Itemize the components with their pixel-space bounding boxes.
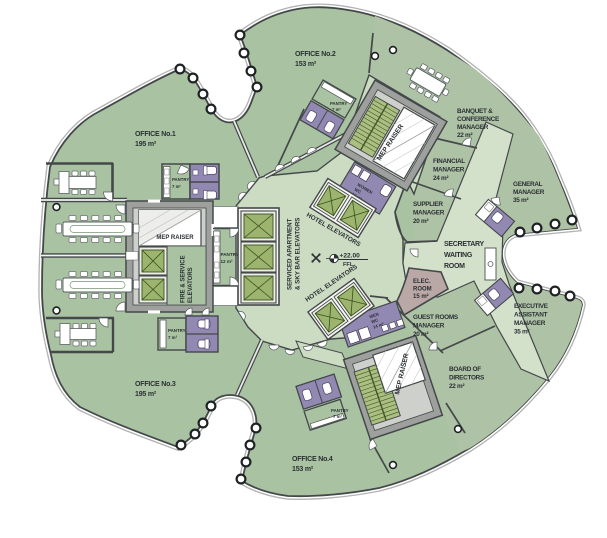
svg-text:7 m²: 7 m² [332,107,341,112]
svg-text:GENERAL: GENERAL [513,181,543,188]
svg-text:SECRETARY: SECRETARY [444,241,484,248]
svg-text:22 m²: 22 m² [449,383,464,390]
svg-text:MANAGER: MANAGER [413,210,445,217]
svg-text:WAITING: WAITING [444,252,473,259]
svg-text:BANQUET &: BANQUET & [457,108,493,115]
svg-text:CONFERENCE: CONFERENCE [457,116,500,123]
svg-text:ELEVATORS: ELEVATORS [188,267,194,303]
svg-text:OFFICE No.3: OFFICE No.3 [135,381,176,388]
svg-text:PANTRY: PANTRY [221,252,239,257]
svg-text:EXECUTIVE: EXECUTIVE [514,303,549,310]
svg-text:195 m²: 195 m² [135,141,157,148]
svg-text:PANTRY: PANTRY [330,101,347,106]
svg-text:OFFICE No.2: OFFICE No.2 [295,51,336,58]
svg-text:SERVICED APARTMENT: SERVICED APARTMENT [287,218,294,290]
svg-text:MANAGER: MANAGER [413,323,445,330]
svg-text:FFL: FFL [343,262,354,268]
svg-text:PANTRY: PANTRY [331,408,349,413]
svg-text:MANAGER: MANAGER [514,320,546,327]
svg-text:22 m²: 22 m² [457,132,472,139]
svg-text:7 m²: 7 m² [168,335,178,340]
svg-text:& SKY BAR ELEVATORS: & SKY BAR ELEVATORS [295,218,302,290]
svg-text:BOARD OF: BOARD OF [449,366,481,373]
svg-text:7 m²: 7 m² [333,414,343,419]
svg-text:MANAGER: MANAGER [433,167,465,174]
svg-text:OFFICE No.1: OFFICE No.1 [135,131,176,138]
svg-text:SUPPLIER: SUPPLIER [413,201,443,208]
svg-text:ROOM: ROOM [413,287,432,293]
svg-text:MANAGER: MANAGER [457,124,489,131]
svg-text:153 m²: 153 m² [292,466,314,473]
svg-text:FIRE & SERVICE: FIRE & SERVICE [181,255,187,303]
svg-text:35 m²: 35 m² [514,329,529,336]
svg-text:GUEST ROOMS: GUEST ROOMS [413,314,459,321]
svg-text:24 m²: 24 m² [433,175,448,182]
svg-text:15 m²: 15 m² [413,293,429,300]
svg-text:35 m²: 35 m² [513,197,528,204]
svg-text:12 m²: 12 m² [221,259,233,264]
svg-text:ROOM: ROOM [444,263,465,270]
svg-text:7 m²: 7 m² [172,184,181,189]
svg-text:PANTRY: PANTRY [172,177,189,182]
svg-text:MANAGER: MANAGER [513,189,545,196]
svg-text:20 m²: 20 m² [413,331,428,338]
svg-text:ASSISTANT: ASSISTANT [514,312,548,319]
svg-text:DIRECTORS: DIRECTORS [449,375,485,382]
svg-text:153 m²: 153 m² [295,61,317,68]
svg-text:FINANCIAL: FINANCIAL [433,158,465,165]
svg-text:195 m²: 195 m² [135,391,157,398]
svg-text:+22.00: +22.00 [340,253,361,260]
svg-text:MEP RAISER: MEP RAISER [156,235,194,241]
svg-text:ELEC.: ELEC. [413,279,431,285]
svg-text:OFFICE No.4: OFFICE No.4 [292,456,333,463]
svg-text:20 m²: 20 m² [413,218,428,225]
svg-text:PANTRY: PANTRY [168,328,186,333]
